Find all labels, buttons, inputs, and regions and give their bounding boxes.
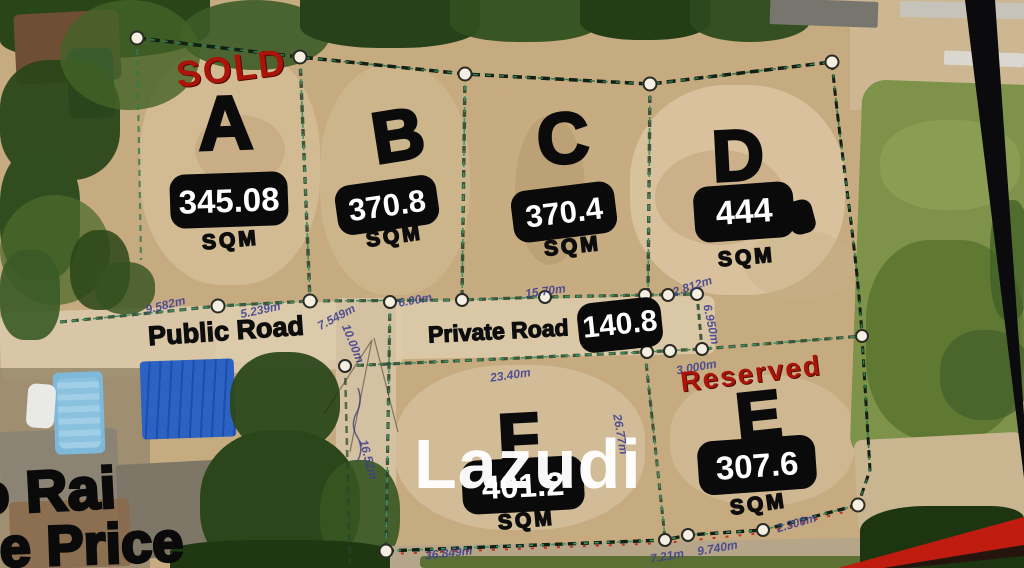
- plot-b-letter: B: [367, 96, 430, 175]
- plot-a-letter: A: [197, 85, 255, 163]
- boundary-line-right: [832, 62, 870, 505]
- vertical-road-west-edge: [345, 366, 350, 568]
- divider-e-f: [645, 352, 665, 538]
- boundary-line-right-green: [832, 62, 870, 505]
- plot-d-area: 444: [692, 181, 796, 244]
- aerial-land-plot-photo: SOLD Reserved A 345.08 SQM B 370.8 SQM C…: [0, 0, 1024, 568]
- lazudi-watermark: Lazudi: [414, 424, 642, 504]
- cropped-text-price: le Price: [0, 509, 184, 568]
- boundary-line-left: [137, 38, 141, 260]
- plot-a-area: 345.08: [169, 171, 289, 229]
- divider-c-d-green: [648, 84, 650, 295]
- plot-e-area: 307.6: [696, 434, 817, 496]
- plot-d-unit: SQM: [717, 245, 775, 271]
- plot-c-letter: C: [535, 101, 592, 176]
- private-road-length: 140.8: [576, 296, 665, 355]
- utility-pole: [965, 0, 1024, 478]
- plot-a-unit: SQM: [201, 228, 259, 254]
